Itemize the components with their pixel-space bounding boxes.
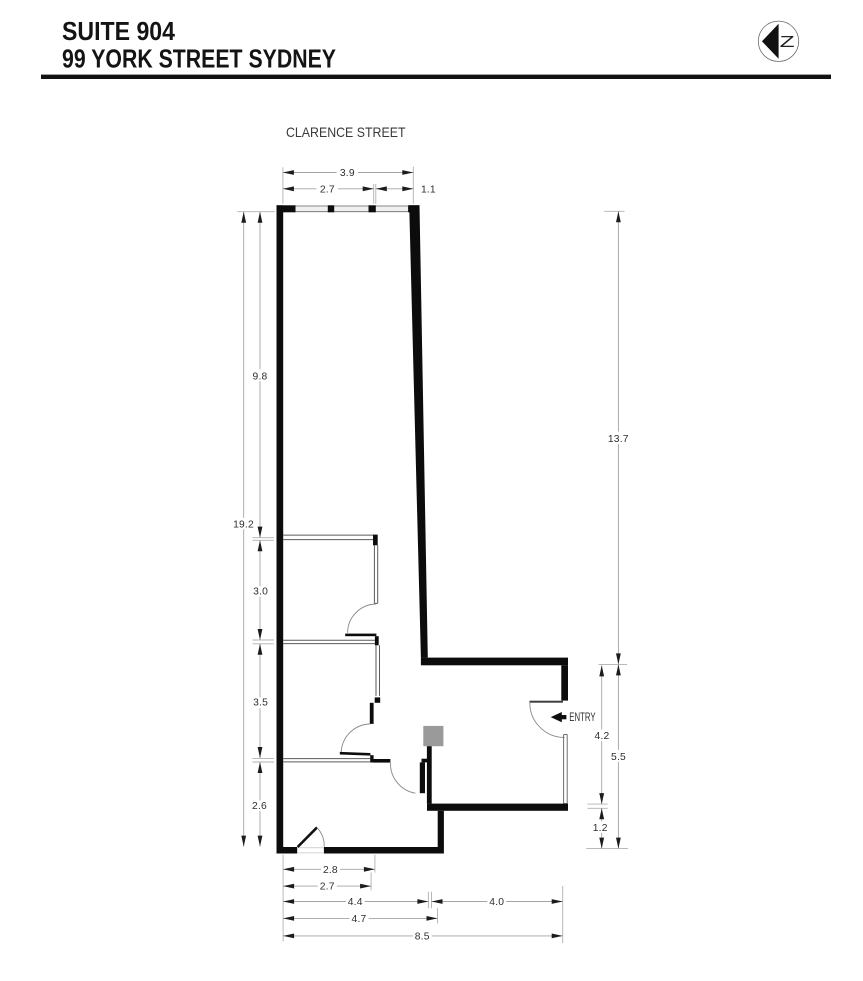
svg-text:9.8: 9.8 [253, 371, 268, 382]
svg-text:5.5: 5.5 [611, 752, 626, 763]
svg-text:SUITE 904: SUITE 904 [62, 16, 175, 46]
svg-text:3.5: 3.5 [253, 698, 268, 709]
svg-text:4.2: 4.2 [595, 731, 610, 742]
svg-text:1.1: 1.1 [421, 184, 436, 195]
svg-text:CLARENCE STREET: CLARENCE STREET [286, 125, 406, 140]
svg-text:2.8: 2.8 [323, 865, 338, 876]
svg-text:99 YORK STREET SYDNEY: 99 YORK STREET SYDNEY [62, 43, 336, 73]
svg-text:ENTRY: ENTRY [569, 710, 595, 724]
svg-text:4.0: 4.0 [489, 897, 504, 908]
svg-text:1.2: 1.2 [593, 823, 608, 834]
svg-text:3.9: 3.9 [340, 168, 355, 179]
svg-text:3.0: 3.0 [253, 586, 268, 597]
svg-text:4.4: 4.4 [348, 897, 363, 908]
svg-text:Z: Z [780, 34, 796, 51]
svg-text:13.7: 13.7 [608, 434, 629, 445]
svg-text:2.6: 2.6 [252, 801, 267, 812]
svg-text:2.7: 2.7 [320, 184, 335, 195]
svg-text:2.7: 2.7 [320, 882, 335, 893]
svg-text:4.7: 4.7 [352, 914, 367, 925]
svg-text:8.5: 8.5 [415, 932, 430, 943]
svg-text:19.2: 19.2 [233, 519, 254, 530]
